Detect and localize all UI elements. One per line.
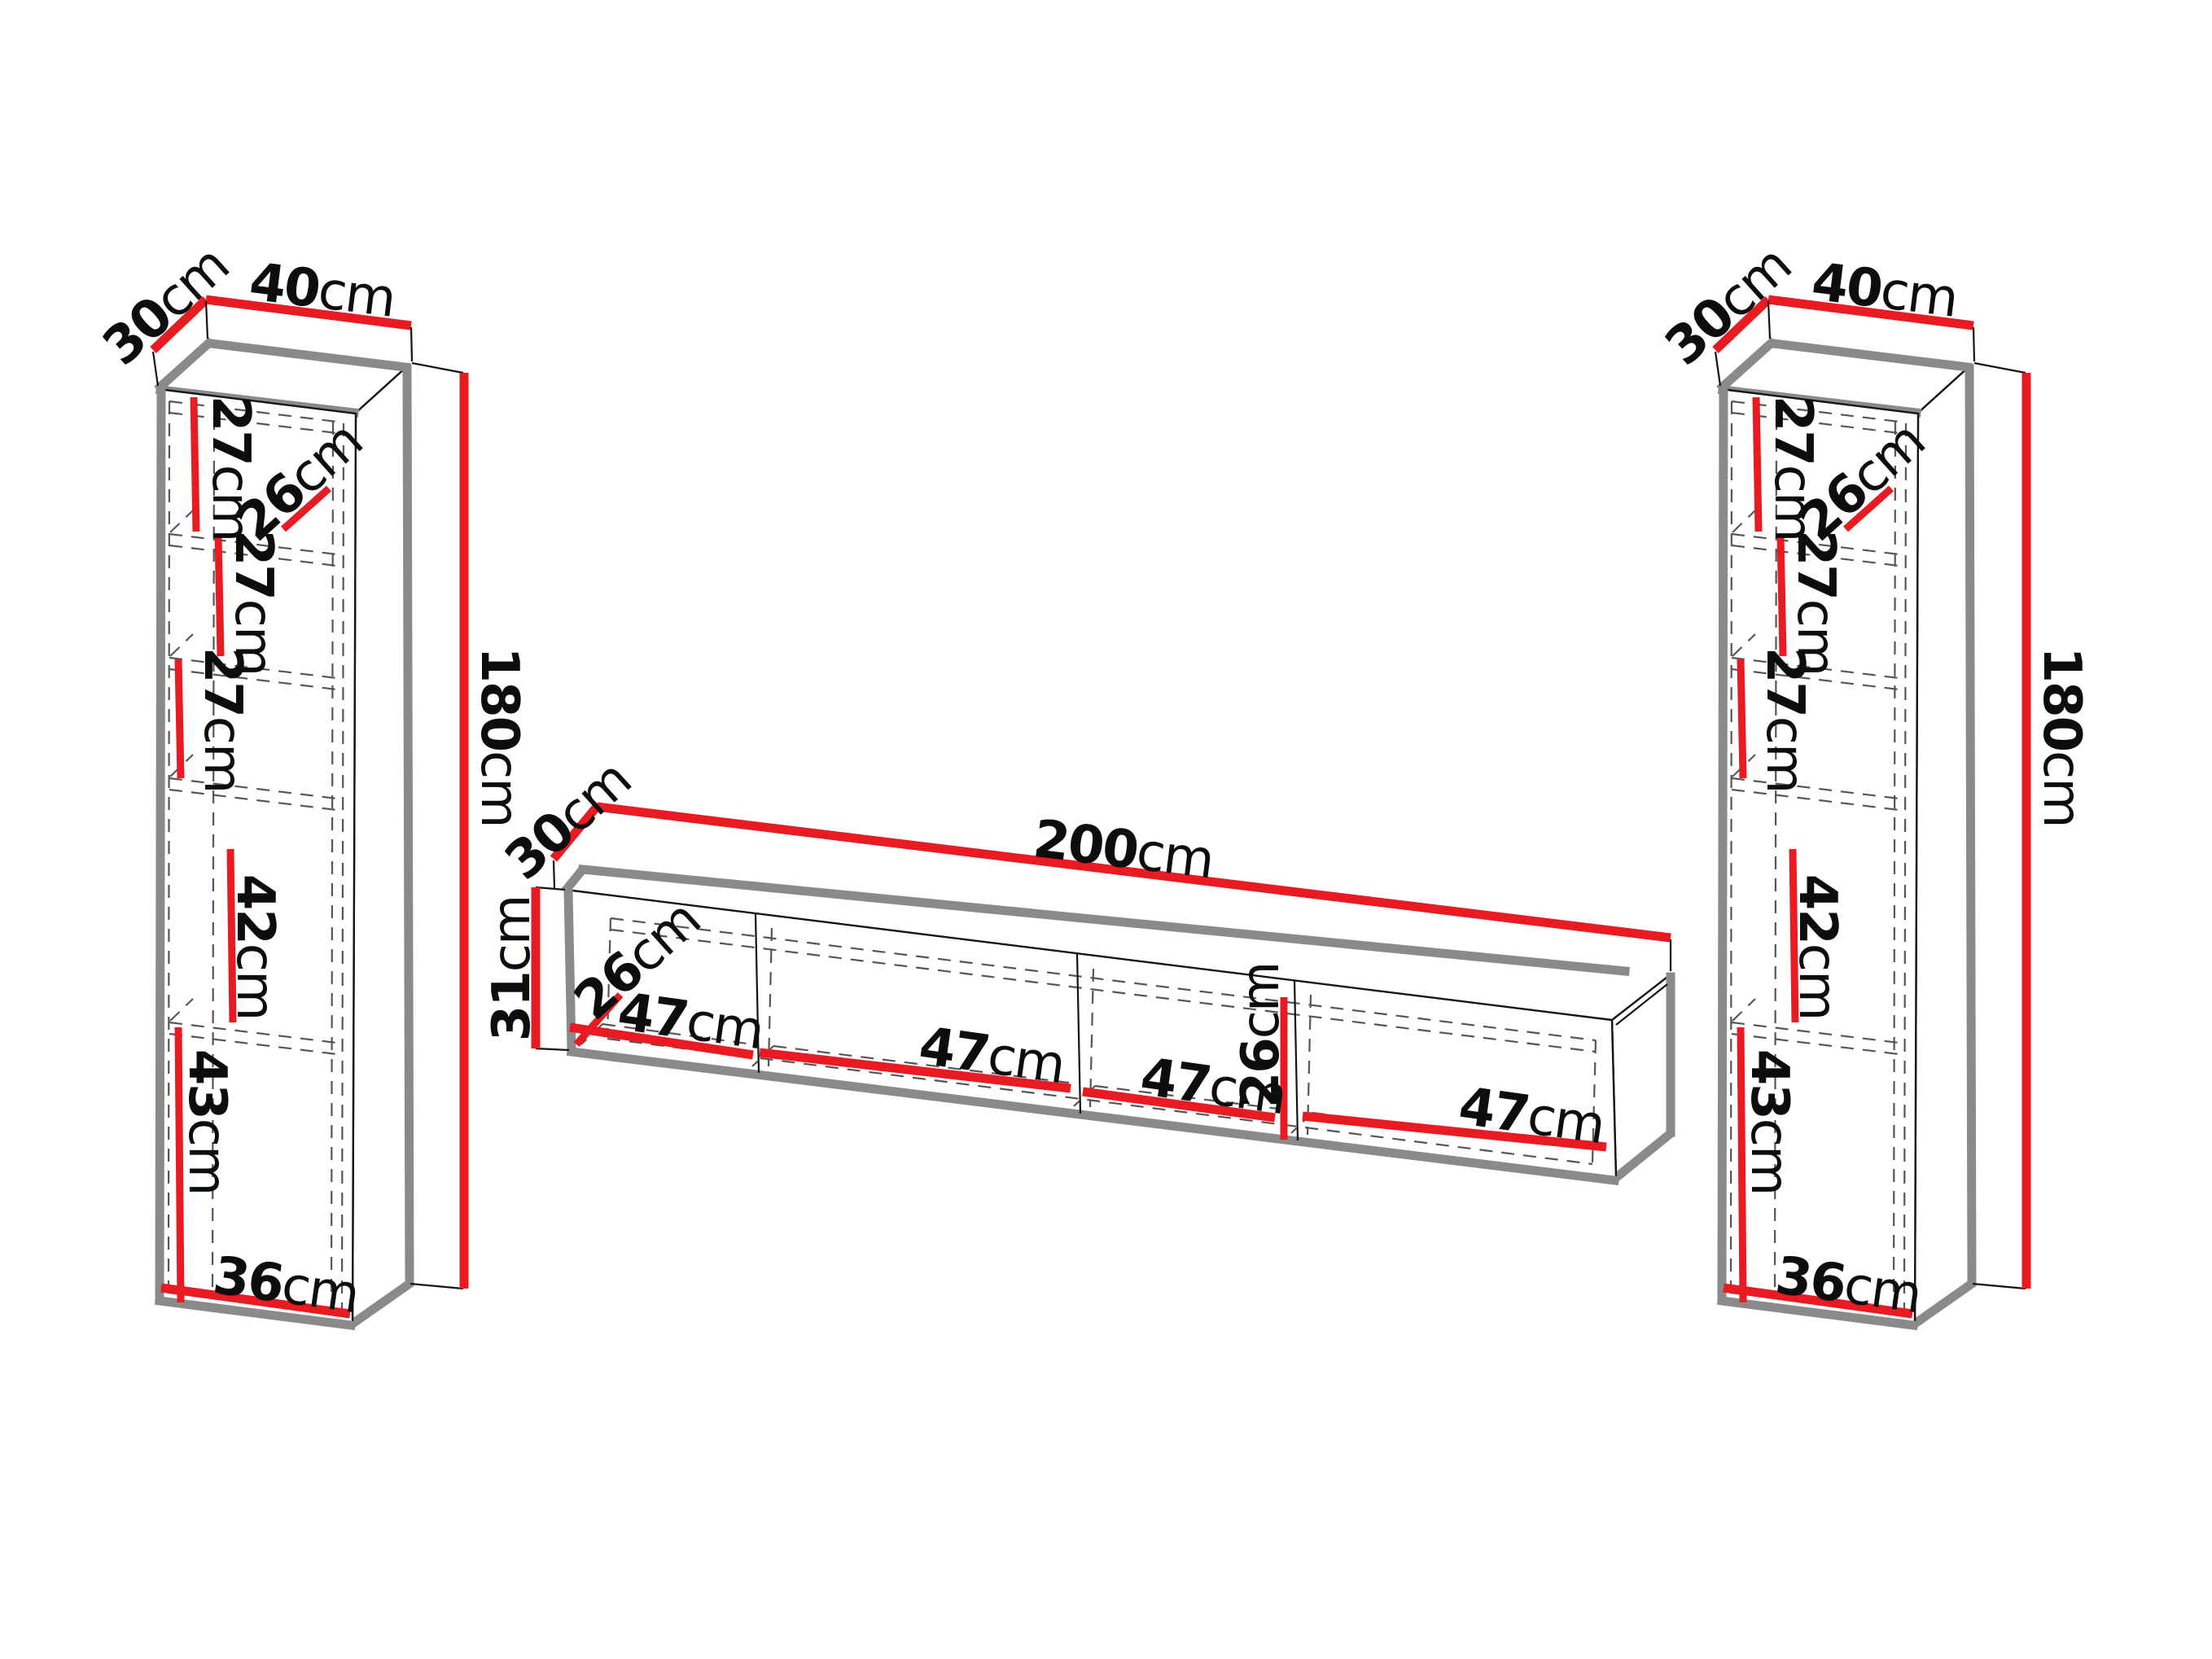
right-cabinet-shelf-dim-line-0 <box>1756 397 1759 532</box>
tv-stand-back-left-shadow <box>567 871 581 888</box>
left-cabinet: 30cm 40cm 180cm 27cm 26cm 27cm 27cm 42cm… <box>92 235 529 1325</box>
right-cabinet-shelf-dim-label-3: 27cm <box>1754 647 1815 793</box>
right-cabinet-side-right-shadow <box>1969 369 1972 1282</box>
right-cabinet-height-bottom-ext-line <box>1973 1284 2026 1289</box>
left-cabinet-shelf-dim-label-3: 27cm <box>192 647 252 793</box>
left-cabinet-front-left-shadow <box>160 392 161 1298</box>
right-cabinet-height-label: 180cm <box>2031 646 2092 826</box>
tv-stand-width-label: 200cm <box>1030 809 1216 891</box>
left-cabinet-height-top-ext-line <box>412 363 463 373</box>
left-cabinet-height-bottom-ext-line <box>410 1284 463 1289</box>
right-cabinet-shelf-dim-label-5: 43cm <box>1739 1049 1799 1195</box>
tv-stand-height-bottom-ext-line <box>536 1048 569 1050</box>
left-cabinet-width-label: 40cm <box>246 252 397 330</box>
left-cabinet-shelf-dim-label-4: 42cm <box>225 874 285 1020</box>
left-cabinet-inner-left-dash <box>169 401 169 1293</box>
right-cabinet-width-label: 40cm <box>1808 252 1960 330</box>
right-cabinet-width-ext-line <box>1973 327 1974 361</box>
right-cabinet: 30cm 40cm 180cm 27cm 26cm 27cm 27cm 42cm… <box>1654 235 2092 1325</box>
left-cabinet-side-right-shadow <box>407 369 410 1282</box>
right-cabinet-shelf-dim-line-3 <box>1741 659 1743 778</box>
right-cabinet-height-top-ext-line <box>1974 363 2026 373</box>
tv-stand-height-label: 31cm <box>482 896 542 1042</box>
left-cabinet-shelf-dim-line-2 <box>218 535 221 656</box>
left-cabinet-shelf-dim-label-5: 43cm <box>177 1049 237 1195</box>
right-cabinet-front-left-shadow <box>1722 392 1724 1298</box>
furniture-dimension-diagram: 30cm 40cm 180cm 27cm 26cm 27cm 27cm 42cm… <box>0 0 2212 1659</box>
right-cabinet-side-face <box>1915 366 1972 1324</box>
left-cabinet-width-ext-line <box>411 327 412 361</box>
left-cabinet-height-label: 180cm <box>469 646 529 826</box>
tv-stand: 30cm 200cm 31cm 26cm 26cm 47cm 47cm 47cm… <box>482 750 1671 1180</box>
left-cabinet-shelf-dim-line-0 <box>194 397 196 532</box>
left-cabinet-shelf-dim-line-3 <box>178 659 181 778</box>
left-cabinet-side-face <box>353 366 410 1324</box>
right-cabinet-shelf-dim-label-4: 42cm <box>1787 874 1847 1020</box>
right-cabinet-shelf-dim-line-2 <box>1781 535 1783 656</box>
right-cabinet-inner-left-dash <box>1731 401 1732 1293</box>
